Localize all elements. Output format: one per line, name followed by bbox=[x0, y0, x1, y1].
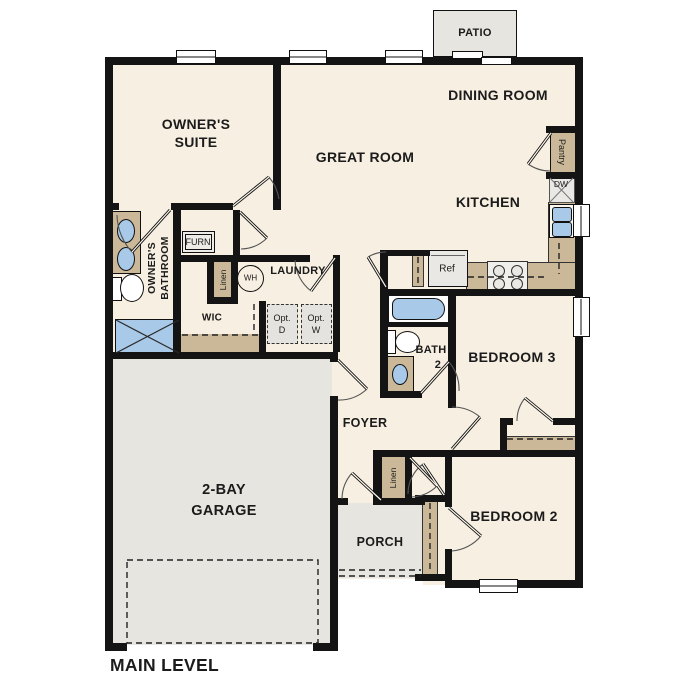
sliding-door-panel bbox=[452, 51, 483, 59]
window bbox=[573, 297, 590, 337]
kitchen-sink-basin bbox=[552, 207, 572, 222]
label-water-heater: WH bbox=[244, 274, 257, 283]
wall-segment bbox=[500, 418, 507, 450]
wall-segment bbox=[546, 172, 575, 179]
label-pantry: Pantry bbox=[557, 139, 567, 165]
label-opt-washer-2: W bbox=[312, 325, 321, 335]
room-label-bedroom2: BEDROOM 2 bbox=[470, 508, 558, 524]
optional-dryer bbox=[267, 304, 298, 344]
room-label-kitchen: KITCHEN bbox=[456, 194, 520, 210]
room-label-bath2-1: BATH bbox=[416, 344, 447, 356]
wall-segment bbox=[330, 396, 338, 651]
stove bbox=[487, 261, 528, 291]
shower bbox=[115, 319, 179, 353]
room-label-porch: PORCH bbox=[357, 535, 404, 549]
label-opt-washer-1: Opt. bbox=[307, 313, 324, 323]
window bbox=[289, 50, 327, 64]
wall-segment bbox=[231, 262, 238, 302]
wall-segment bbox=[333, 255, 340, 352]
bathtub-basin bbox=[392, 298, 445, 320]
wall-segment bbox=[373, 450, 381, 505]
owners-bathroom-line2: BATHROOM bbox=[159, 236, 172, 299]
wall-segment bbox=[553, 418, 576, 425]
wall-segment bbox=[380, 391, 422, 398]
room-label-patio: PATIO bbox=[458, 27, 491, 39]
owners-bath-sink bbox=[117, 247, 135, 271]
wall-segment bbox=[113, 203, 119, 210]
wall-segment bbox=[388, 250, 430, 256]
room-label-owners-suite-2: SUITE bbox=[175, 134, 218, 150]
window bbox=[479, 579, 518, 593]
floor-plan: PATIO DINING ROOM OWNER'S SUITE GREAT RO… bbox=[0, 0, 687, 687]
wall-segment bbox=[173, 210, 181, 352]
burner-icon bbox=[511, 265, 523, 277]
burner-icon bbox=[493, 265, 505, 277]
wall-segment bbox=[171, 203, 233, 210]
wall-segment bbox=[181, 255, 310, 262]
room-label-wic: WIC bbox=[202, 313, 222, 324]
bedroom3-closet-shelf bbox=[505, 436, 576, 451]
wall-segment bbox=[415, 495, 448, 502]
wall-segment bbox=[273, 196, 281, 210]
room-label-owners-suite-1: OWNER'S bbox=[162, 116, 230, 132]
sliding-door-panel bbox=[481, 57, 512, 65]
bedroom2-closet-shelf bbox=[422, 501, 438, 578]
label-dishwasher: DW bbox=[554, 179, 568, 189]
kitchen-sink-basin bbox=[552, 222, 572, 237]
bathtub bbox=[388, 294, 449, 324]
wall-segment bbox=[338, 498, 348, 505]
wall-segment bbox=[546, 126, 575, 133]
wall-segment bbox=[207, 262, 213, 302]
label-opt-dryer-1: Opt. bbox=[273, 313, 290, 323]
room-label-dining: DINING ROOM bbox=[448, 87, 548, 103]
ref-side-shelf bbox=[412, 254, 424, 287]
wall-segment bbox=[405, 457, 412, 502]
wall-segment bbox=[380, 295, 388, 398]
wall-segment bbox=[105, 352, 338, 359]
window bbox=[385, 50, 423, 64]
optional-washer bbox=[301, 304, 332, 344]
label-linen-bathroom: Linen bbox=[218, 270, 228, 291]
wall-segment bbox=[273, 57, 281, 203]
room-label-bedroom3: BEDROOM 3 bbox=[468, 349, 556, 365]
window bbox=[573, 204, 590, 237]
owners-bathroom-line1: OWNER'S bbox=[146, 236, 159, 299]
wall-segment bbox=[207, 297, 238, 304]
label-refrigerator: Ref bbox=[439, 264, 455, 275]
room-label-owners-bathroom: OWNER'S BATHROOM bbox=[146, 236, 172, 299]
room-label-foyer: FOYER bbox=[343, 416, 388, 430]
wall-segment bbox=[448, 296, 456, 408]
room-label-garage-1: 2-BAY bbox=[202, 482, 246, 498]
label-opt-dryer-2: D bbox=[279, 325, 286, 335]
plan-title: MAIN LEVEL bbox=[110, 655, 219, 676]
kitchen-sink bbox=[549, 204, 574, 238]
owners-bath-sink bbox=[117, 219, 135, 243]
owners-toilet-bowl bbox=[120, 274, 144, 302]
refrigerator-handle bbox=[431, 255, 465, 256]
room-label-garage-2: GARAGE bbox=[191, 503, 256, 519]
wall-segment bbox=[415, 574, 448, 581]
room-label-great-room: GREAT ROOM bbox=[316, 149, 414, 165]
wall-segment bbox=[373, 450, 583, 457]
room-label-bath2-2: 2 bbox=[435, 359, 441, 371]
bath2-sink bbox=[392, 364, 408, 385]
label-linen-hallway: Linen bbox=[388, 468, 398, 489]
window bbox=[176, 50, 216, 64]
wall-segment bbox=[380, 289, 575, 296]
wall-segment bbox=[259, 301, 266, 352]
wall-segment bbox=[383, 322, 448, 327]
wall-segment bbox=[105, 643, 127, 651]
room-label-laundry: LAUNDRY bbox=[270, 265, 325, 277]
label-furnace: FURN bbox=[186, 237, 211, 247]
wic-shelf bbox=[179, 334, 262, 353]
exterior-patch bbox=[338, 579, 423, 589]
garage-slab bbox=[113, 359, 332, 645]
